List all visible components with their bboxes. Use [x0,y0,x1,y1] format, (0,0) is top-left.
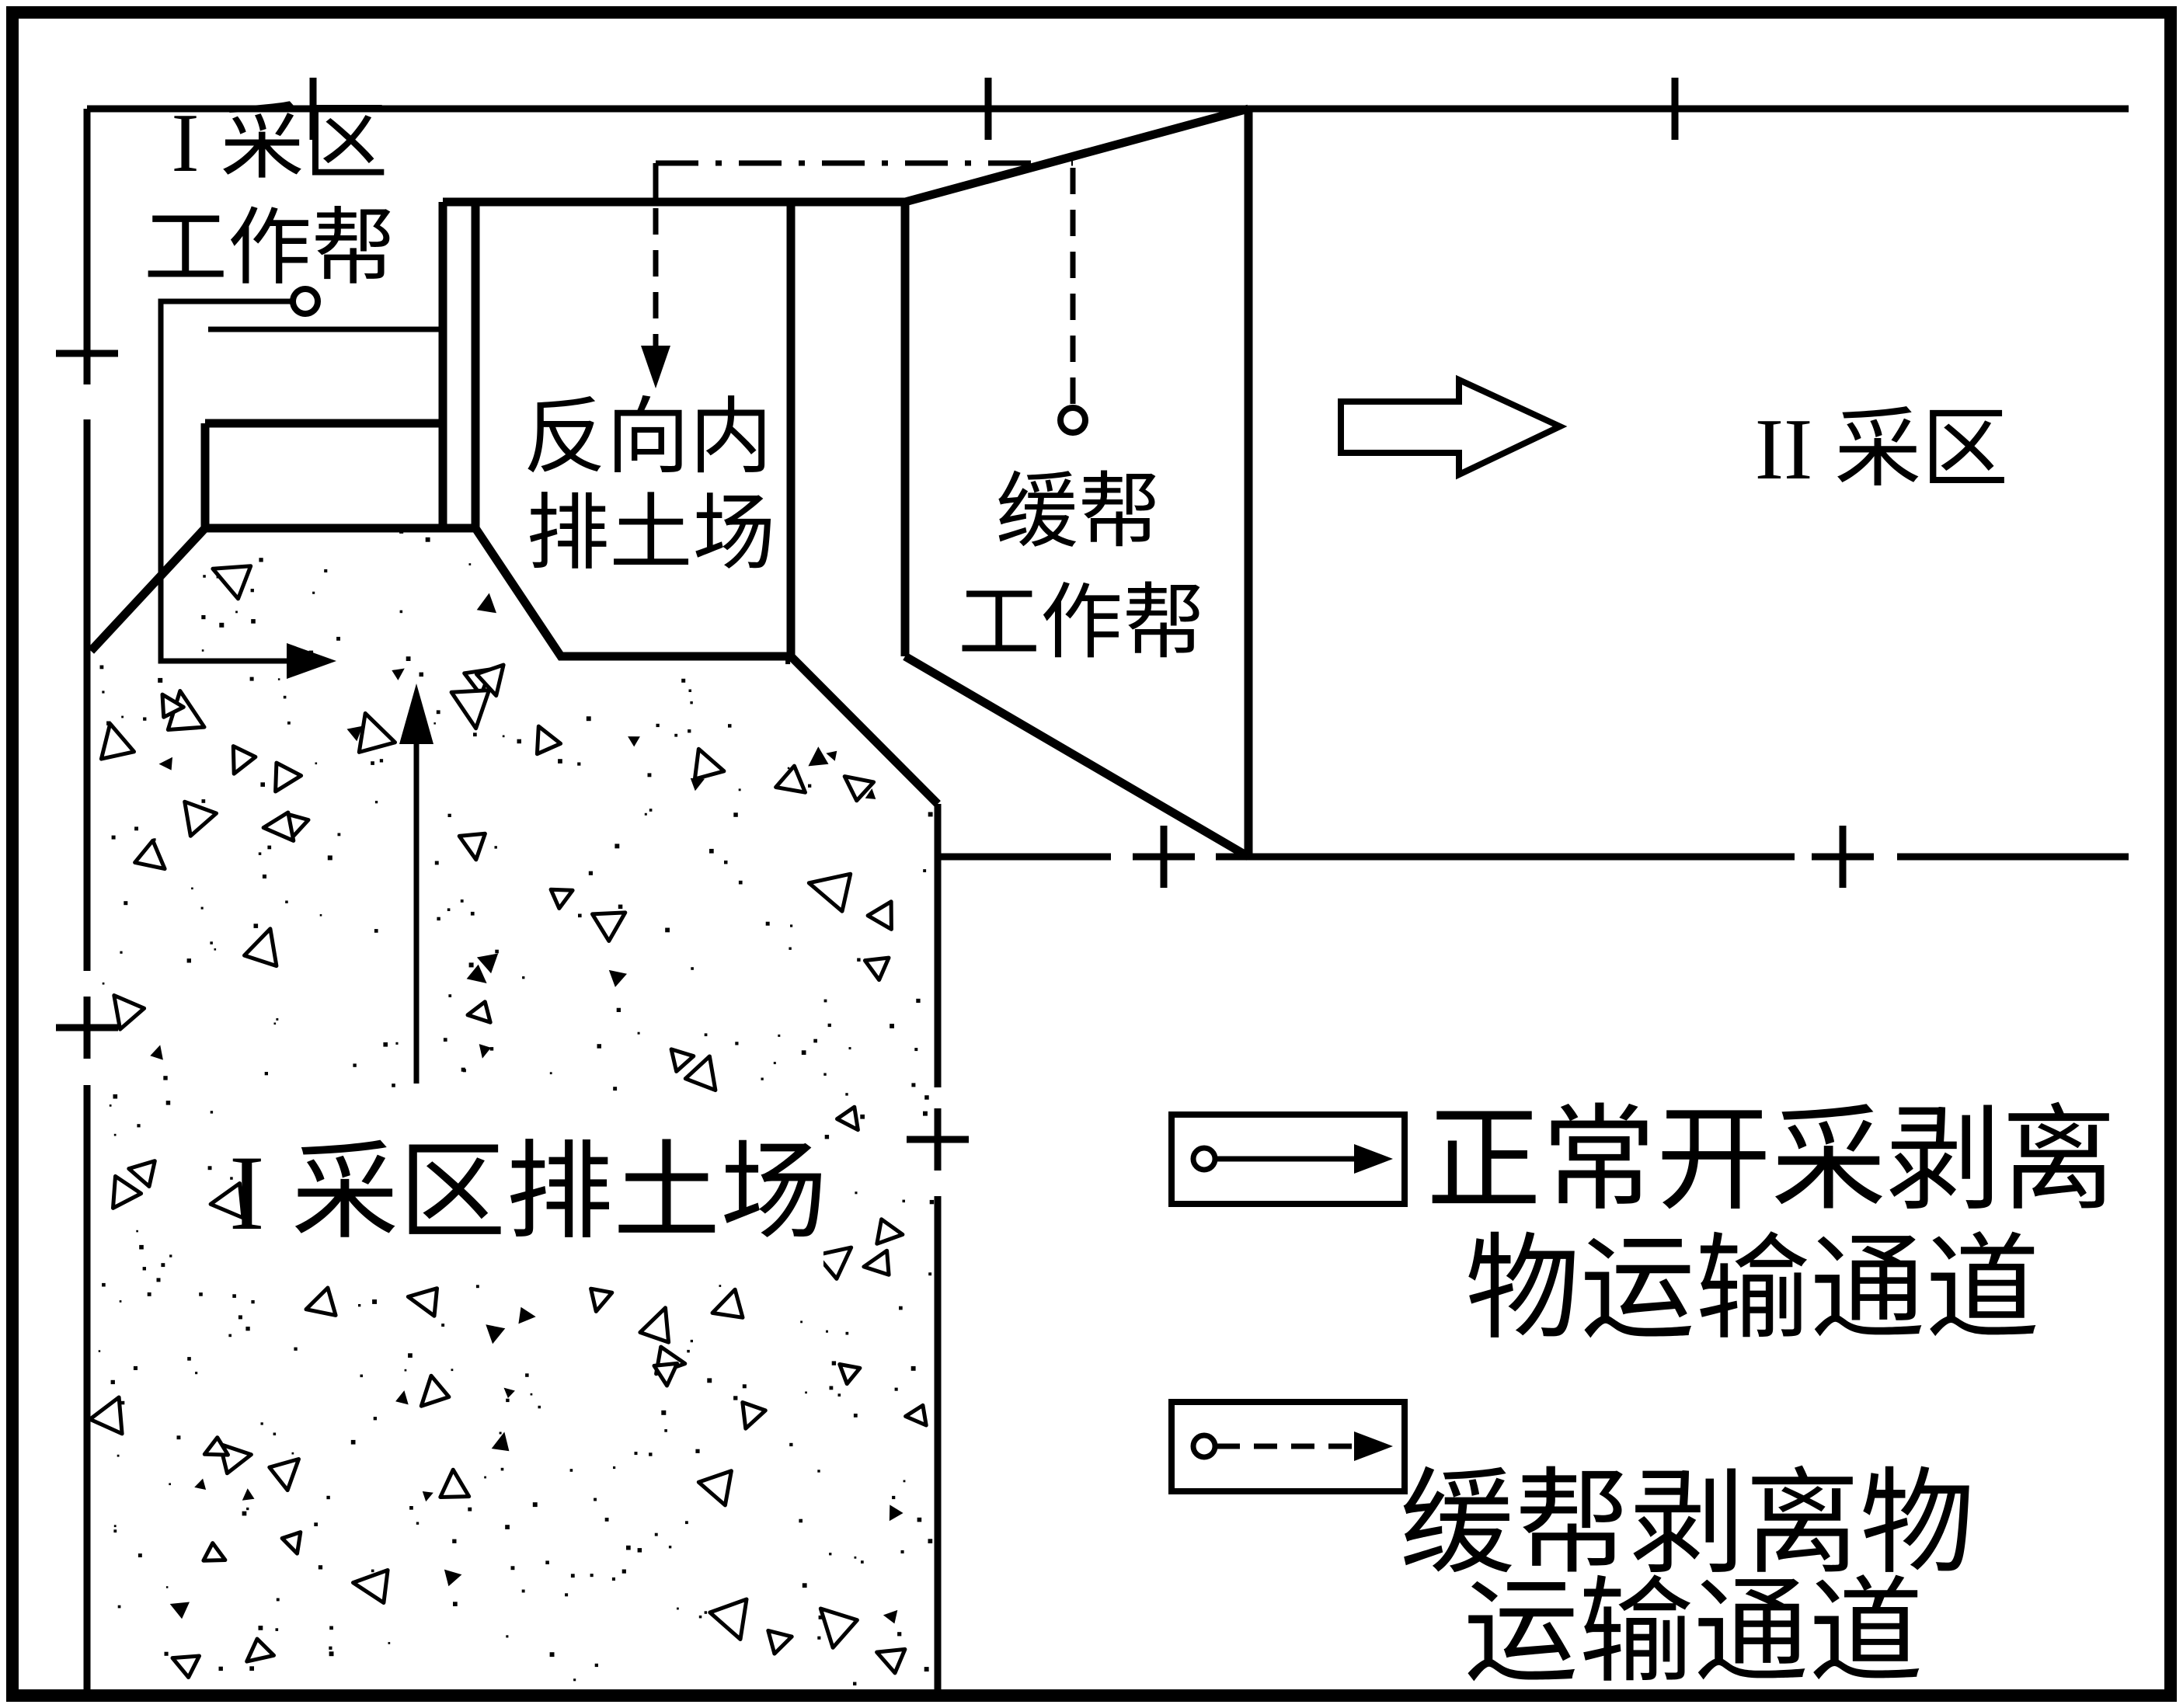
stipple-dot [823,1073,826,1076]
route-start-circle-icon [1060,408,1085,433]
stipple-dot [687,1350,690,1353]
stipple-dot [689,690,692,693]
stipple-dot [453,1602,458,1606]
stipple-dot [471,912,475,916]
stipple-dot [166,1586,169,1588]
stipple-dot [245,1327,249,1331]
stipple-dot [691,1340,693,1342]
stipple-dot [506,1635,508,1637]
stipple-dot [392,1084,395,1087]
stipple-dot [113,1094,118,1099]
stipple-dot [828,1024,831,1027]
stipple-dot [817,1470,820,1472]
stipple-dot [238,1315,242,1319]
stipple-dot [157,1278,161,1282]
stipple-dot [699,1616,702,1619]
stipple-dot [677,1608,679,1610]
stipple-dot [437,710,440,714]
label-reverse-dump-line2: 排土场 [526,489,775,580]
stipple-dot [923,869,926,872]
stipple-dot [617,1008,621,1012]
stipple-dot [597,1044,602,1049]
stipple-dot [267,846,271,850]
stipple-dot [416,1522,419,1525]
stipple-dot [803,1583,807,1588]
stipple-dot [612,1578,615,1581]
stipple-dot [114,1134,117,1136]
stipple-dot [645,813,647,816]
stipple-dot [661,1411,666,1415]
stipple-dot [830,1386,834,1390]
stipple-dot [249,1666,254,1671]
stipple-dot [375,801,378,803]
stipple-dot [635,1452,638,1455]
stipple-dot [570,1469,573,1472]
stipple-dot [838,1393,841,1397]
stipple-dot [117,1455,120,1457]
stipple-dot [328,855,332,860]
stipple-dot [761,1078,764,1080]
stipple-dot [911,1366,916,1371]
stipple-dot [118,1605,121,1609]
stipple-dot [511,1566,515,1570]
stipple-dot [897,1632,901,1636]
stipple-dot [319,1565,322,1569]
stipple-dot [273,1433,277,1436]
stipple-dot [468,1508,472,1511]
stipple-dot [595,1664,598,1667]
stipple-dot [691,967,694,970]
stipple-dot [277,1598,280,1602]
stipple-dot [329,1626,333,1630]
stipple-dot [285,901,288,904]
stipple-dot [899,1306,903,1310]
stipple-dot [613,1087,617,1091]
stipple-dot [695,1449,699,1453]
stipple-dot [406,656,411,661]
stipple-dot [451,1369,454,1371]
stipple-dot [861,1560,864,1564]
stipple-dot [219,1667,223,1671]
stipple-dot [111,1380,115,1384]
stipple-dot [143,718,146,721]
stipple-dot [100,666,104,670]
stipple-dot [260,782,265,787]
stipple-dot [707,1378,712,1383]
stipple-dot [380,759,383,762]
stipple-dot [923,1111,928,1116]
stipple-dot [420,673,424,677]
stipple-dot [435,861,439,865]
stipple-dot [525,1373,529,1377]
stipple-dot [618,905,623,910]
stipple-dot [565,1593,568,1596]
stipple-dot [538,1406,541,1409]
stipple-dot [360,1375,364,1378]
stipple-dot [187,1357,191,1361]
stipple-dot [571,1574,575,1578]
stipple-dot [846,1332,849,1335]
stipple-dot [102,1283,106,1287]
stipple-dot [211,1111,213,1113]
label-buffer-slope-line2: 工作帮 [958,578,1205,669]
stipple-dot [274,1023,277,1025]
stipple-dot [503,736,505,738]
stipple-dot [121,716,124,718]
stipple-dot [495,846,497,848]
stipple-dot [242,1511,247,1516]
stipple-dot [161,1263,165,1267]
stipple-dot [517,739,522,744]
stipple-dot [353,1063,356,1066]
stipple-dot [148,1292,151,1296]
stipple-dot [163,1076,167,1080]
stipple-dot [928,1539,933,1543]
stipple-dot [329,1647,332,1650]
stipple-dot [709,849,714,854]
stipple-dot [320,914,322,917]
stipple-dot [903,1200,906,1203]
stipple-dot [626,1546,631,1550]
stipple-dot [395,1042,398,1045]
stipple-dot [232,1294,236,1298]
stipple-dot [924,1667,929,1671]
stipple-dot [187,958,191,962]
stipple-dot [278,678,280,680]
stipple-dot [917,1518,922,1522]
stipple-dot [928,1272,931,1275]
stipple-dot [506,1399,509,1402]
stipple-dot [134,826,138,830]
stipple-dot [473,732,477,736]
stipple-dot [235,611,238,614]
stipple-dot [261,1422,263,1424]
stipple-dot [739,881,743,885]
stipple-dot [911,1083,915,1087]
stipple-dot [112,836,116,840]
stipple-dot [674,734,677,737]
stipple-dot [469,563,472,565]
stipple-dot [214,948,217,951]
stipple-dot [326,1496,329,1499]
stipple-dot [531,1393,533,1396]
stipple-dot [501,1468,504,1471]
stipple-dot [374,1417,377,1420]
stipple-dot [254,924,259,928]
stipple-dot [558,759,562,764]
stipple-dot [799,1519,803,1523]
stipple-dot [228,1334,232,1338]
stipple-dot [251,589,254,592]
stipple-dot [110,1104,112,1107]
stipple-dot [550,1072,552,1074]
stipple-dot [664,1429,667,1432]
stipple-dot [315,763,318,765]
stipple-dot [681,679,685,683]
stipple-dot [292,1452,294,1455]
stipple-dot [484,1477,486,1479]
stipple-dot [855,1557,857,1559]
stipple-dot [113,1529,117,1532]
stipple-dot [166,1101,171,1105]
stipple-dot [102,691,104,693]
stipple-dot [590,1574,594,1577]
stipple-dot [813,1039,817,1043]
stipple-dot [371,761,374,765]
stipple-dot [724,861,728,864]
stipple-dot [928,812,933,817]
stipple-dot [638,1548,642,1553]
stipple-dot [433,722,436,725]
stipple-dot [587,716,591,721]
stipple-dot [388,1642,391,1644]
stipple-dot [495,950,499,954]
stipple-dot [469,962,474,967]
stipple-dot [903,1480,906,1483]
stipple-dot [158,678,162,683]
stipple-dot [121,1401,125,1405]
stipple-dot [613,1466,615,1469]
stipple-dot [550,1652,555,1657]
stipple-dot [890,1024,893,1028]
stipple-dot [522,1590,525,1593]
stipple-dot [924,1095,929,1100]
stipple-dot [210,941,213,944]
stipple-dot [500,1432,502,1435]
stipple-dot [829,1553,831,1555]
stipple-dot [324,569,327,572]
stipple-dot [615,844,619,848]
stipple-dot [448,814,451,817]
stipple-dot [314,1522,318,1526]
stipple-dot [690,701,692,704]
legend-normal-label-line1: 正常开采剥离 [1426,1098,2116,1225]
stipple-dot [789,948,791,950]
stipple-dot [452,1539,456,1543]
stipple-dot [103,983,105,985]
stipple-dot [665,928,670,933]
stipple-dot [789,1443,792,1446]
stipple-dot [136,1230,138,1233]
stipple-dot [916,999,920,1003]
stipple-dot [372,1299,377,1304]
stipple-dot [259,852,262,855]
stipple-dot [914,1048,917,1051]
stipple-dot [655,1533,658,1536]
stipple-dot [545,1560,549,1564]
stipple-dot [447,908,451,911]
stipple-dot [202,649,204,652]
stipple-dot [930,1200,934,1204]
stipple-dot [405,1369,407,1372]
stipple-dot [845,1093,848,1095]
stipple-dot [120,1300,122,1303]
stipple-dot [688,729,691,732]
stipple-dot [426,537,430,542]
stipple-dot [573,1678,576,1681]
stipple-dot [605,1518,609,1522]
stipple-dot [208,1166,212,1170]
stipple-dot [191,888,193,890]
stipple-dot [743,1384,747,1388]
stipple-dot [134,1366,138,1370]
stipple-dot [461,1068,465,1072]
stipple-dot [124,901,127,905]
stipple-dot [855,1191,857,1194]
label-buffer-slope-line1: 缓帮 [996,467,1161,558]
stipple-dot [854,1414,858,1418]
stipple-dot [594,1498,597,1501]
stipple-dot [165,1652,169,1656]
stipple-dot [857,958,860,962]
stipple-dot [622,1570,626,1574]
stipple-dot [202,799,206,803]
stipple-dot [774,1062,776,1064]
stipple-dot [817,1637,820,1640]
stipple-dot [251,619,256,624]
stipple-dot [246,1508,249,1510]
stipple-dot [383,1042,388,1047]
stipple-dot [778,1035,780,1037]
stipple-dot [114,1525,117,1527]
stipple-dot [276,1628,279,1631]
stipple-dot [251,1300,254,1303]
stipple-dot [638,1032,640,1035]
stipple-dot [287,722,291,725]
stipple-dot [649,809,653,812]
stipple-dot [139,1245,144,1250]
stipple-dot [648,773,652,777]
stipple-dot [138,1553,142,1557]
stipple-dot [263,875,266,878]
stipple-dot [120,951,122,954]
stipple-dot [849,1047,851,1049]
stipple-dot [669,1546,671,1548]
stipple-dot [284,696,287,699]
stipple-dot [99,1350,101,1352]
stipple-dot [719,1285,722,1287]
stipple-dot [739,788,741,791]
stipple-dot [259,558,263,562]
stipple-dot [705,1033,708,1036]
stipple-dot [476,1285,479,1288]
stipple-dot [448,994,451,997]
label-zone1-dump: I 采区排土场 [229,1133,827,1252]
stipple-dot [259,1626,263,1630]
stipple-dot [705,1611,708,1614]
stipple-dot [400,610,403,614]
stipple-dot [201,615,205,619]
stipple-dot [685,1521,688,1524]
stipple-dot [733,812,738,817]
stipple-dot [203,575,206,578]
stipple-dot [790,924,792,927]
stipple-dot [437,917,440,920]
stipple-dot [895,1388,898,1391]
stipple-dot [805,1392,807,1394]
stipple-dot [441,1324,444,1327]
stipple-dot [169,1254,172,1257]
stipple-dot [338,833,341,837]
stipple-dot [461,899,464,903]
stipple-dot [294,1348,297,1351]
stipple-dot [276,1018,278,1021]
mining-plan-diagram: I 采区 工作帮 反向内 排土场 缓帮 工作帮 II 采区 I 采区排土场 正常… [0,0,2183,1708]
stipple-dot [733,1396,737,1400]
stipple-dot [371,1570,374,1573]
stipple-dot [351,1440,356,1445]
legend-normal-label-line2: 物运输通道 [1465,1226,2040,1354]
stipple-dot [177,1435,181,1439]
stipple-dot [143,1267,146,1270]
stipple-dot [409,1506,413,1510]
stipple-dot [137,1124,140,1127]
stipple-dot [219,623,224,628]
stipple-dot [728,724,732,728]
stipple-dot [169,1483,171,1485]
stipple-dot [505,1525,510,1529]
stipple-dot [578,914,582,918]
stipple-dot [826,1331,828,1333]
stipple-dot [824,1000,827,1003]
stipple-dot [800,1321,803,1324]
stipple-dot [312,592,315,594]
label-zone2: II 采区 [1755,402,2009,498]
stipple-dot [577,763,580,766]
stipple-dot [329,1651,334,1656]
stipple-dot [656,724,660,727]
stipple-dot [444,1038,447,1042]
legend-buffer-label-line2: 运输通道 [1464,1570,1924,1697]
stipple-dot [735,1042,738,1045]
stipple-dot [802,1050,806,1055]
stipple-dot [901,1550,904,1553]
stipple-dot [199,1292,203,1296]
stipple-dot [589,871,593,875]
legend-circle-icon [1193,1148,1215,1170]
stipple-dot [892,1496,895,1499]
stipple-dot [860,1115,865,1119]
stipple-dot [853,1682,856,1685]
stipple-dot [808,784,811,788]
label-zone1-slope-line2: 工作帮 [144,203,395,295]
stipple-dot [533,1502,538,1507]
stipple-dot [766,922,770,926]
stipple-dot [832,1361,836,1365]
label-reverse-dump-line1: 反向内 [523,392,772,484]
stipple-dot [374,929,378,933]
label-zone1-slope-line1: I 采区 [172,97,388,190]
legend-circle-icon [1193,1435,1215,1457]
stipple-dot [649,1452,652,1456]
stipple-dot [201,907,204,910]
stipple-dot [195,1372,197,1374]
stipple-dot [522,976,524,979]
stipple-dot [250,677,254,681]
stipple-dot [358,1304,360,1306]
stipple-dot [408,1353,413,1358]
stipple-dot [265,1072,268,1075]
stipple-dot [336,637,340,641]
